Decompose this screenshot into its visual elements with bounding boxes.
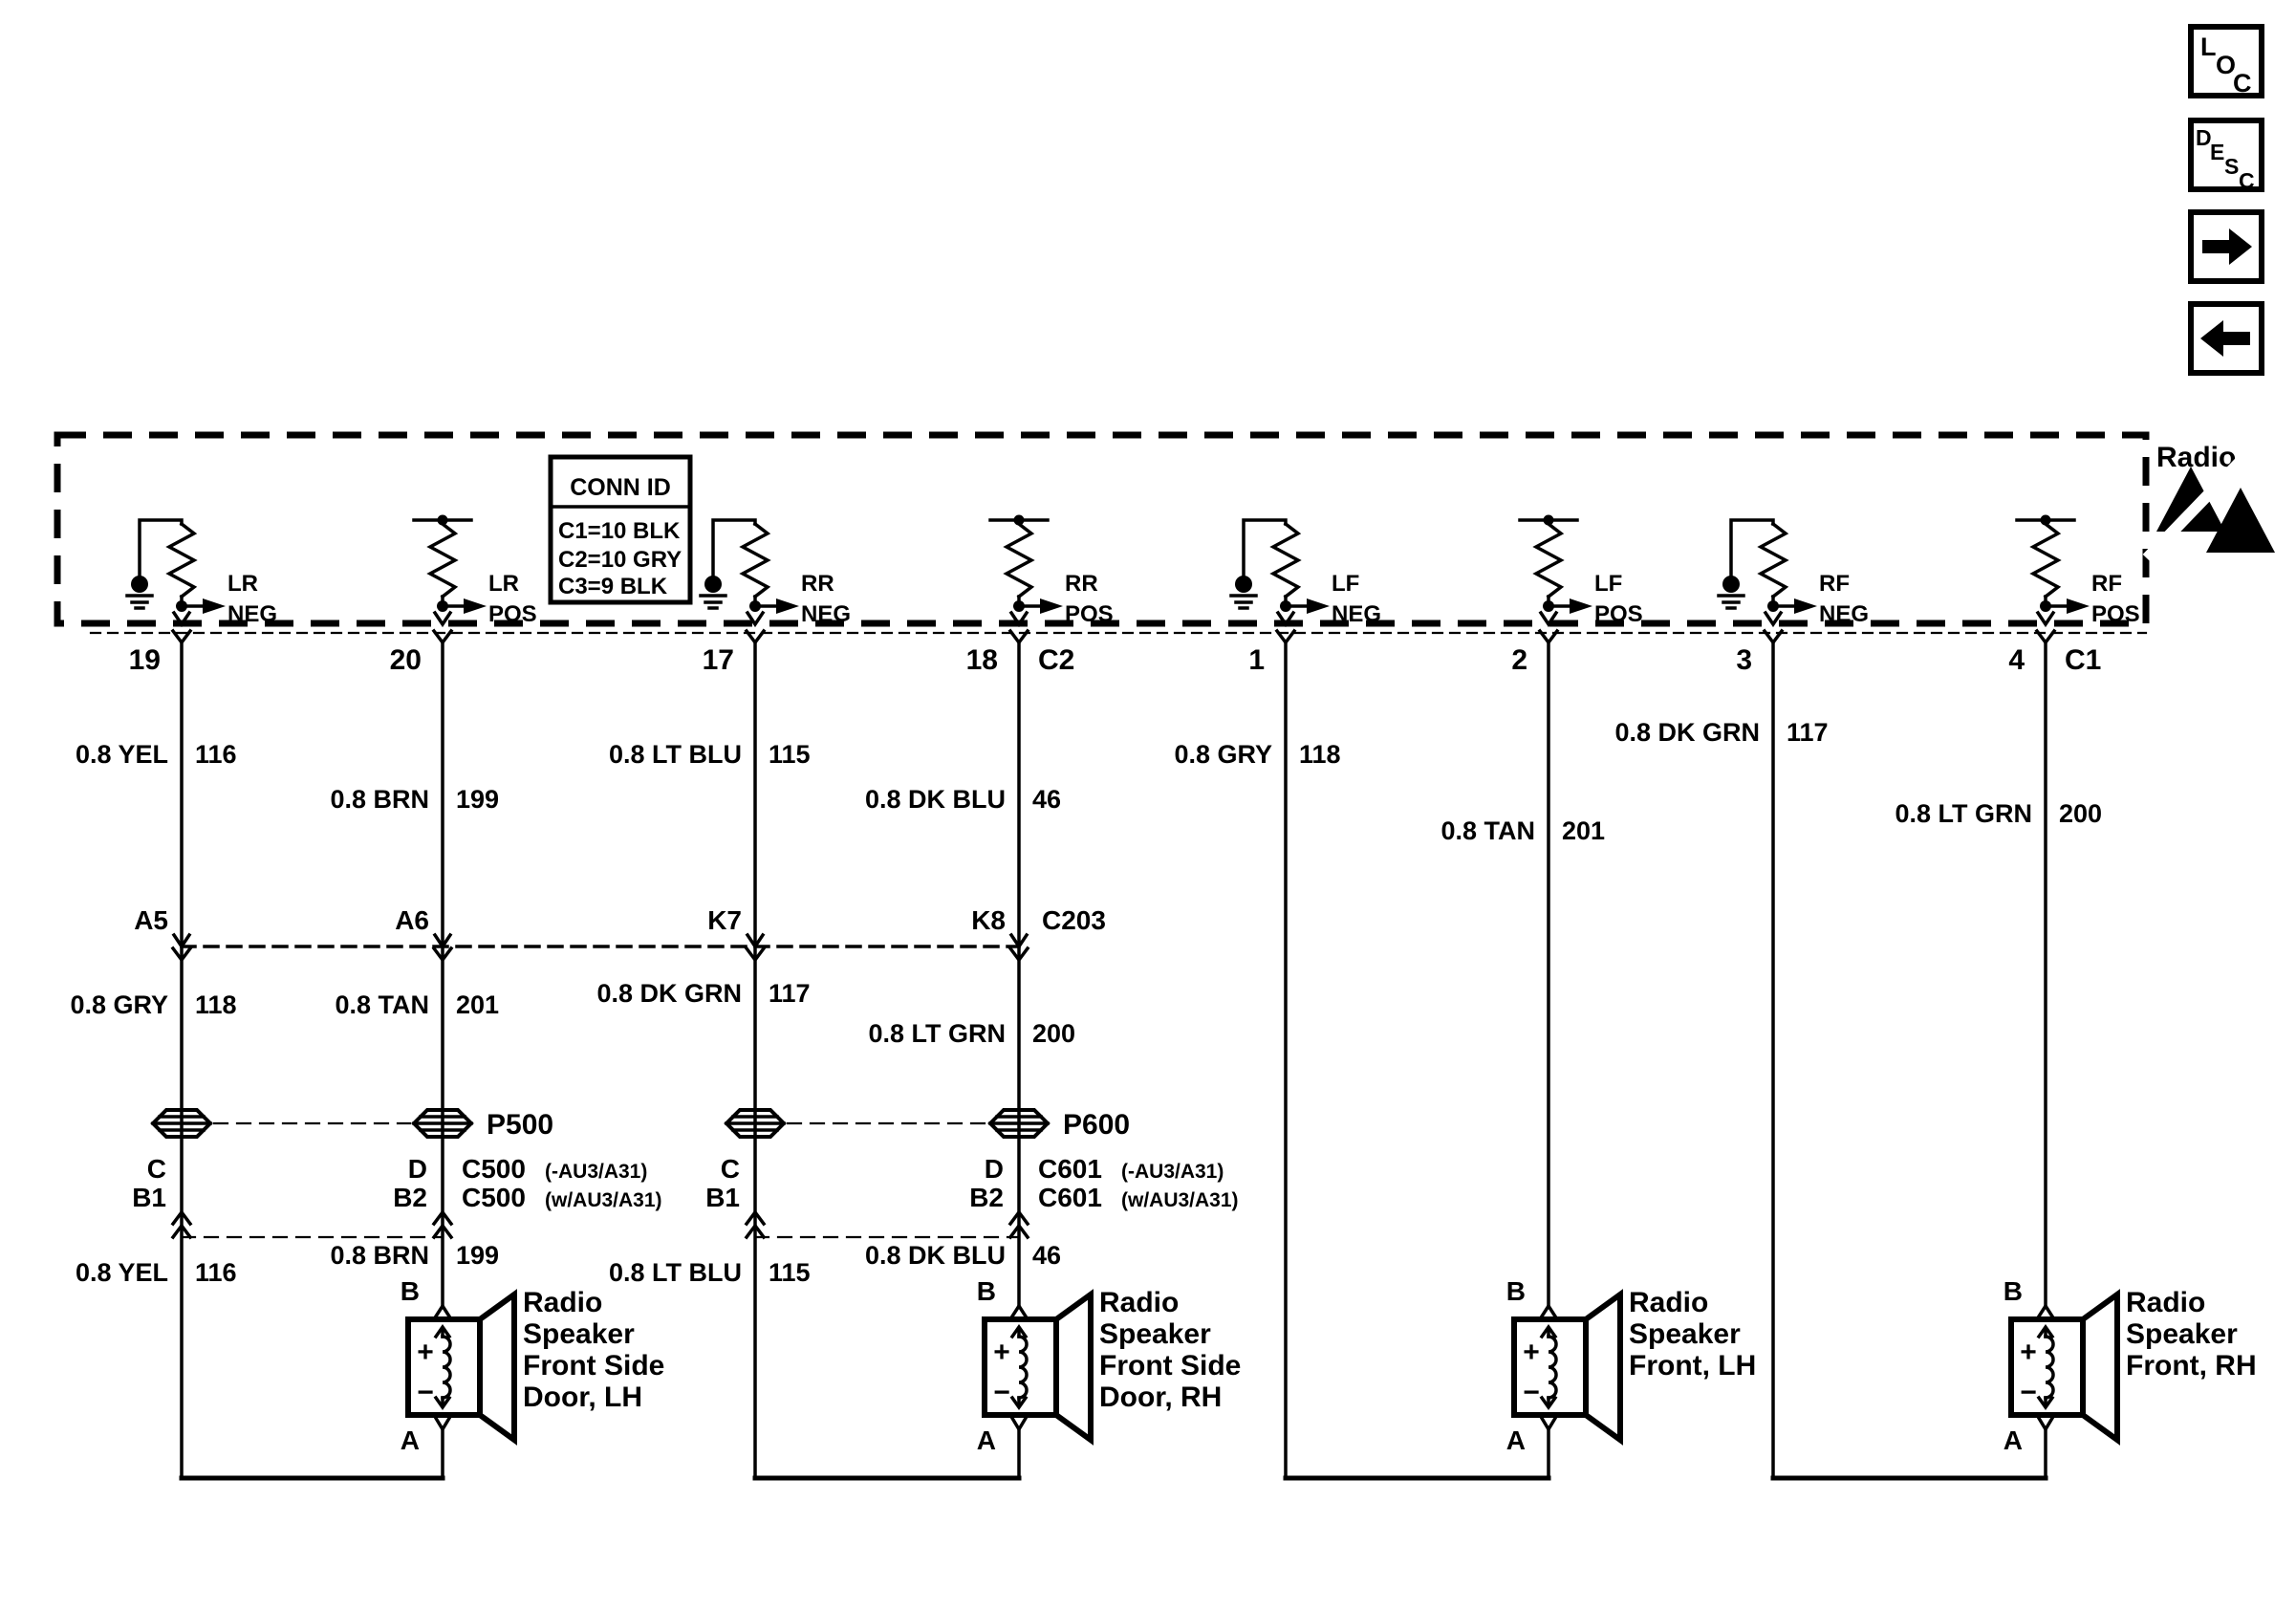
resistor <box>743 524 768 597</box>
radio-channel-lf-neg: LF NEG 1 <box>1231 520 1381 676</box>
svg-text:118: 118 <box>195 990 237 1019</box>
speaker-name: Front Side <box>523 1350 664 1382</box>
channel-polarity: NEG <box>801 601 851 627</box>
wiring-diagram-page: L O C D E S C Radio CONN ID C1=10 BLK C2… <box>0 0 2296 1610</box>
pin-label: 20 <box>390 644 422 676</box>
pin-label: B1 <box>132 1183 166 1212</box>
conn-id-row: C2=10 GRY <box>558 547 682 573</box>
plus-terminal: + <box>417 1337 434 1368</box>
channel-polarity: POS <box>1594 601 1643 627</box>
speaker-horn <box>480 1295 514 1440</box>
connector-variant-label: (-AU3/A31) <box>545 1161 647 1183</box>
speaker-name: Speaker <box>2126 1318 2238 1350</box>
arrow-right-icon <box>2202 228 2252 265</box>
speaker-front-side-door-lh: B + − A Radio Speaker Front Side Door, L… <box>401 1276 665 1478</box>
svg-text:0.8 BRN: 0.8 BRN <box>330 1241 429 1270</box>
svg-text:0.8 GRY: 0.8 GRY <box>70 990 168 1019</box>
arrow-right-icon <box>1307 598 1330 614</box>
resistor <box>169 524 194 597</box>
arrow-down-icon <box>2038 613 2053 624</box>
speaker-front-lh: B + − A Radio Speaker Front, LH <box>1506 1276 1757 1478</box>
svg-text:0.8 YEL: 0.8 YEL <box>76 1258 168 1287</box>
svg-text:0.8 DK GRN: 0.8 DK GRN <box>596 979 742 1008</box>
connector-variant-label: (w/AU3/A31) <box>545 1189 662 1211</box>
pin-label: D <box>408 1154 427 1184</box>
ground-icon <box>127 576 152 608</box>
speaker-name: Front Side <box>1099 1350 1241 1382</box>
radio-channel-lr-pos: LR POS 20 <box>390 515 537 677</box>
pin-label: C <box>147 1154 166 1184</box>
connector-fork <box>1540 631 1557 642</box>
ground-icon <box>1231 576 1256 608</box>
speaker-front-side-door-rh: B + − A Radio Speaker Front Side Door, R… <box>977 1276 1242 1478</box>
connector-id-label: C2 <box>1038 644 1074 676</box>
speaker-horn <box>1586 1295 1620 1440</box>
loc-label-letter: C <box>2233 69 2252 98</box>
arrow-right-icon <box>1794 598 1817 614</box>
channel-group: RF <box>1819 571 1850 597</box>
minus-terminal: − <box>2020 1377 2037 1408</box>
svg-text:201: 201 <box>456 990 499 1019</box>
pass-through-p600: P600 <box>726 1109 1130 1141</box>
connector-id-label: C601 <box>1038 1183 1102 1212</box>
resistor <box>1761 524 1786 597</box>
svg-text:199: 199 <box>456 785 499 814</box>
desc-label-letter: C <box>2239 168 2255 193</box>
radio-channel-lf-pos: LF POS 2 <box>1511 515 1642 677</box>
pin-label: B <box>401 1276 420 1306</box>
svg-text:117: 117 <box>1787 718 1829 747</box>
resistor <box>1273 524 1298 597</box>
svg-text:0.8 TAN: 0.8 TAN <box>1440 816 1535 845</box>
connector-id-label: C500 <box>462 1154 526 1184</box>
channel-group: LR <box>227 571 258 597</box>
pin-label: B2 <box>969 1183 1004 1212</box>
arrow-down-icon <box>435 613 450 624</box>
speaker-name: Radio <box>2126 1287 2205 1318</box>
pin-label: 1 <box>1248 644 1265 676</box>
connector-c601: C B1 D B2 C601 (-AU3/A31) C601 (w/AU3/A3… <box>705 1154 1238 1237</box>
speaker-name: Radio <box>1099 1287 1179 1318</box>
conn-id-row: C3=9 BLK <box>558 574 668 599</box>
arrow-down-icon <box>1765 613 1781 624</box>
pass-through-p500: P500 <box>153 1109 553 1141</box>
svg-text:0.8 LT GRN: 0.8 LT GRN <box>868 1019 1006 1048</box>
channel-polarity: NEG <box>1819 601 1869 627</box>
channel-polarity: POS <box>2091 601 2140 627</box>
wire-label: 0.8 GRY 118 0.8 TAN 201 0.8 DK GRN 117 0… <box>70 979 1075 1048</box>
wire-label: 0.8 YEL 116 0.8 BRN 199 0.8 LT BLU 115 0… <box>76 718 2102 845</box>
loc-label-letter: L <box>2200 33 2217 61</box>
pin-label: 3 <box>1736 644 1752 676</box>
connector-id-label: C601 <box>1038 1154 1102 1184</box>
radio-channel-lr-neg: LR NEG 19 <box>127 520 277 676</box>
speaker-name: Door, RH <box>1099 1382 1222 1413</box>
svg-text:116: 116 <box>195 740 237 769</box>
minus-terminal: − <box>417 1377 434 1408</box>
svg-text:0.8 TAN: 0.8 TAN <box>335 990 429 1019</box>
speaker-name: Speaker <box>1629 1318 1741 1350</box>
pin-label: A <box>977 1425 996 1455</box>
svg-text:117: 117 <box>769 979 811 1008</box>
plus-terminal: + <box>2020 1337 2037 1368</box>
channel-polarity: NEG <box>1332 601 1381 627</box>
speaker-front-rh: B + − A Radio Speaker Front, RH <box>2004 1276 2257 1478</box>
channel-polarity: POS <box>1065 601 1114 627</box>
pin-label: A5 <box>134 905 168 935</box>
connector-fork <box>1765 631 1782 642</box>
svg-text:0.8 LT GRN: 0.8 LT GRN <box>1895 799 2032 828</box>
pin-label: K8 <box>971 905 1006 935</box>
pin-label: B1 <box>705 1183 740 1212</box>
svg-text:200: 200 <box>1032 1019 1075 1048</box>
svg-text:116: 116 <box>195 1258 237 1287</box>
radio-label: Radio <box>2156 442 2236 473</box>
arrow-left-icon <box>2200 320 2250 357</box>
connector-id-label: C1 <box>2065 644 2101 676</box>
svg-text:0.8 GRY: 0.8 GRY <box>1174 740 1272 769</box>
channel-group: LF <box>1332 571 1359 597</box>
radio-channel-rf-neg: RF NEG 3 <box>1719 520 1869 676</box>
connector-c500: C B1 D B2 C500 (-AU3/A31) C500 (w/AU3/A3… <box>132 1154 661 1237</box>
pin-label: 4 <box>2008 644 2025 676</box>
pin-label: A <box>401 1425 420 1455</box>
pin-label: 2 <box>1511 644 1527 676</box>
arrow-right-icon <box>1040 598 1063 614</box>
speaker-name: Speaker <box>1099 1318 1211 1350</box>
channel-group: RR <box>1065 571 1098 597</box>
plus-terminal: + <box>993 1337 1010 1368</box>
pin-label: 17 <box>703 644 734 676</box>
connector-c203: A5 A6 K7 K8 C203 <box>134 905 1106 960</box>
radio-channel-rf-pos: RF POS 4 C1 <box>2008 515 2139 677</box>
pin-label: B2 <box>393 1183 427 1212</box>
svg-text:46: 46 <box>1032 1241 1061 1270</box>
resistor <box>1007 524 1031 597</box>
channel-group: LF <box>1594 571 1622 597</box>
svg-text:200: 200 <box>2059 799 2102 828</box>
wiring-diagram: L O C D E S C Radio CONN ID C1=10 BLK C2… <box>0 0 2296 1610</box>
ground-icon <box>701 576 726 608</box>
pin-label: B <box>2004 1276 2023 1306</box>
speaker-name: Radio <box>1629 1287 1708 1318</box>
conn-id-table: CONN ID C1=10 BLK C2=10 GRY C3=9 BLK <box>551 457 690 602</box>
pass-through-label: P600 <box>1063 1109 1130 1141</box>
arrow-right-icon <box>203 598 226 614</box>
pin-label: A6 <box>395 905 429 935</box>
speaker-name: Door, LH <box>523 1382 642 1413</box>
next-page-button[interactable] <box>2191 212 2262 281</box>
channel-group: RF <box>2091 571 2122 597</box>
arrow-right-icon <box>464 598 487 614</box>
channel-group: LR <box>488 571 519 597</box>
svg-text:0.8 YEL: 0.8 YEL <box>76 740 168 769</box>
prev-page-button[interactable] <box>2191 304 2262 373</box>
speaker-horn <box>1056 1295 1091 1440</box>
svg-text:115: 115 <box>769 1258 811 1287</box>
svg-text:46: 46 <box>1032 785 1061 814</box>
desc-label-letter: E <box>2210 140 2224 164</box>
speaker-name: Front, RH <box>2126 1350 2257 1382</box>
ground-icon <box>1719 576 1744 608</box>
pin-label: B <box>977 1276 996 1306</box>
radio-channel-rr-neg: RR NEG 17 <box>701 520 851 676</box>
pin-label: A <box>2004 1425 2023 1455</box>
channel-polarity: NEG <box>227 601 277 627</box>
speaker-name: Radio <box>523 1287 602 1318</box>
pin-label: 18 <box>966 644 998 676</box>
pass-through-label: P500 <box>487 1109 553 1141</box>
radio-channel-rr-pos: RR POS 18 C2 <box>966 515 1114 677</box>
svg-text:0.8 BRN: 0.8 BRN <box>330 785 429 814</box>
conn-id-title: CONN ID <box>570 474 671 501</box>
svg-text:0.8 LT BLU: 0.8 LT BLU <box>609 740 742 769</box>
channel-group: RR <box>801 571 834 597</box>
pin-label: D <box>985 1154 1004 1184</box>
resistor <box>2033 524 2058 597</box>
svg-text:0.8 DK BLU: 0.8 DK BLU <box>865 1241 1006 1270</box>
minus-terminal: − <box>993 1377 1010 1408</box>
arrow-right-icon <box>2067 598 2090 614</box>
connector-id-label: C500 <box>462 1183 526 1212</box>
speaker-horn <box>2083 1295 2117 1440</box>
pin-label: 19 <box>129 644 161 676</box>
svg-text:118: 118 <box>1299 740 1341 769</box>
pin-label: K7 <box>707 905 742 935</box>
connector-variant-label: (w/AU3/A31) <box>1121 1189 1239 1211</box>
resistor <box>430 524 455 597</box>
pin-label: A <box>1506 1425 1526 1455</box>
minus-terminal: − <box>1523 1377 1540 1408</box>
desc-label-letter: S <box>2224 154 2239 179</box>
connector-id-label: C203 <box>1042 905 1106 935</box>
conn-id-row: C1=10 BLK <box>558 518 681 544</box>
svg-text:0.8 DK GRN: 0.8 DK GRN <box>1614 718 1760 747</box>
plus-terminal: + <box>1523 1337 1540 1368</box>
channel-polarity: POS <box>488 601 537 627</box>
resistor <box>1536 524 1561 597</box>
desc-button[interactable]: D E S C <box>2191 120 2262 193</box>
pin-label: C <box>721 1154 740 1184</box>
svg-text:201: 201 <box>1562 816 1605 845</box>
wire-label: 0.8 YEL 116 0.8 BRN 199 0.8 LT BLU 115 0… <box>76 1241 1061 1287</box>
svg-text:115: 115 <box>769 740 811 769</box>
speaker-name: Speaker <box>523 1318 635 1350</box>
svg-text:0.8 LT BLU: 0.8 LT BLU <box>609 1258 742 1287</box>
arrow-right-icon <box>1570 598 1592 614</box>
svg-text:199: 199 <box>456 1241 499 1270</box>
speaker-name: Front, LH <box>1629 1350 1756 1382</box>
arrow-right-icon <box>776 598 799 614</box>
svg-text:0.8 DK BLU: 0.8 DK BLU <box>865 785 1006 814</box>
pin-label: B <box>1506 1276 1526 1306</box>
loc-button[interactable]: L O C <box>2191 27 2262 98</box>
connector-variant-label: (-AU3/A31) <box>1121 1161 1224 1183</box>
